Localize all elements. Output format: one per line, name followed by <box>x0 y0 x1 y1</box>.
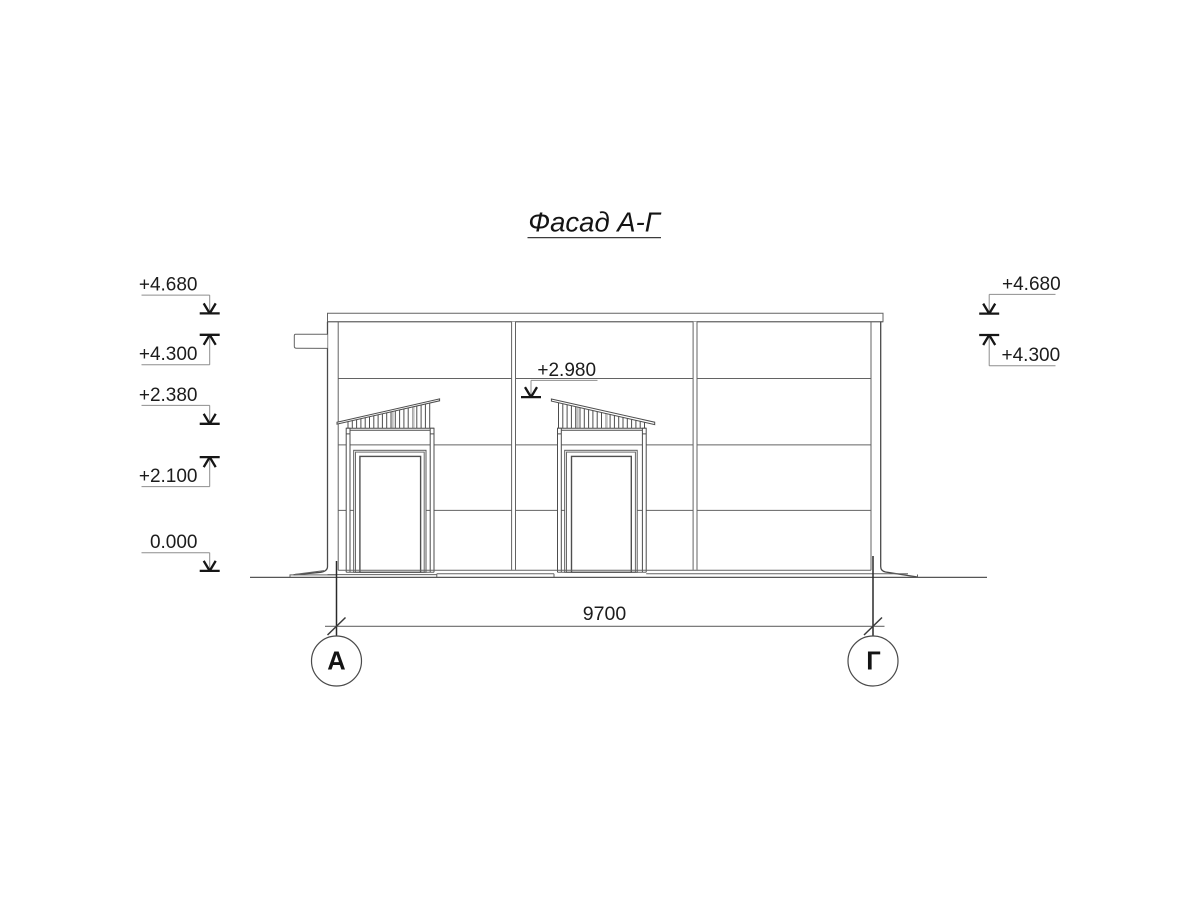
svg-text:+2.380: +2.380 <box>139 385 198 406</box>
svg-text:+4.680: +4.680 <box>1002 274 1061 295</box>
svg-text:Г: Г <box>866 648 880 676</box>
svg-text:+4.680: +4.680 <box>139 275 198 296</box>
svg-text:+4.300: +4.300 <box>1002 345 1061 366</box>
svg-text:+2.980: +2.980 <box>537 360 596 381</box>
svg-text:Фасад А-Г: Фасад А-Г <box>528 207 662 238</box>
svg-text:0.000: 0.000 <box>150 532 198 553</box>
svg-text:А: А <box>327 648 345 676</box>
svg-text:9700: 9700 <box>583 603 627 625</box>
svg-text:+2.100: +2.100 <box>139 466 198 487</box>
svg-text:+4.300: +4.300 <box>139 344 198 365</box>
